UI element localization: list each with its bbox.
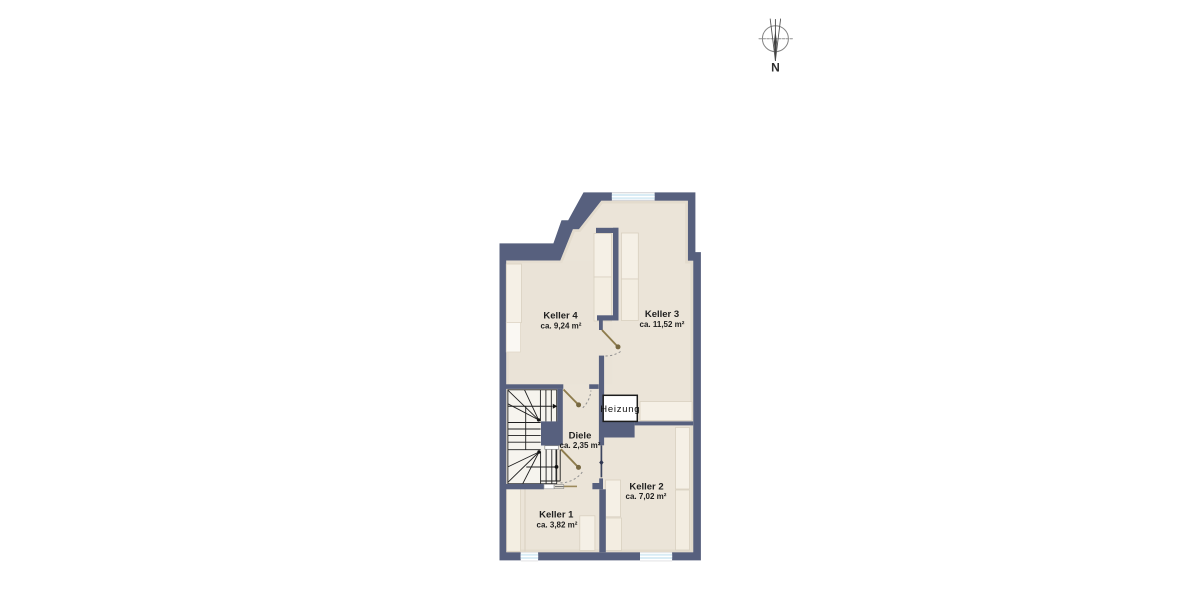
svg-text:ca. 9,24 m²: ca. 9,24 m² — [541, 322, 582, 331]
svg-text:ca. 7,02 m²: ca. 7,02 m² — [626, 492, 667, 501]
svg-text:Keller 4: Keller 4 — [543, 311, 578, 322]
svg-text:Keller 2: Keller 2 — [629, 482, 663, 493]
svg-text:Keller 3: Keller 3 — [645, 309, 679, 320]
svg-text:ca. 11,52 m²: ca. 11,52 m² — [640, 320, 685, 329]
svg-text:ca. 3,82 m²: ca. 3,82 m² — [537, 520, 578, 529]
svg-text:Heizung: Heizung — [600, 404, 640, 415]
svg-text:N: N — [771, 61, 780, 75]
svg-text:ca. 2,35 m²: ca. 2,35 m² — [560, 441, 601, 450]
svg-text:Diele: Diele — [569, 431, 592, 442]
svg-text:Keller 1: Keller 1 — [539, 510, 574, 521]
